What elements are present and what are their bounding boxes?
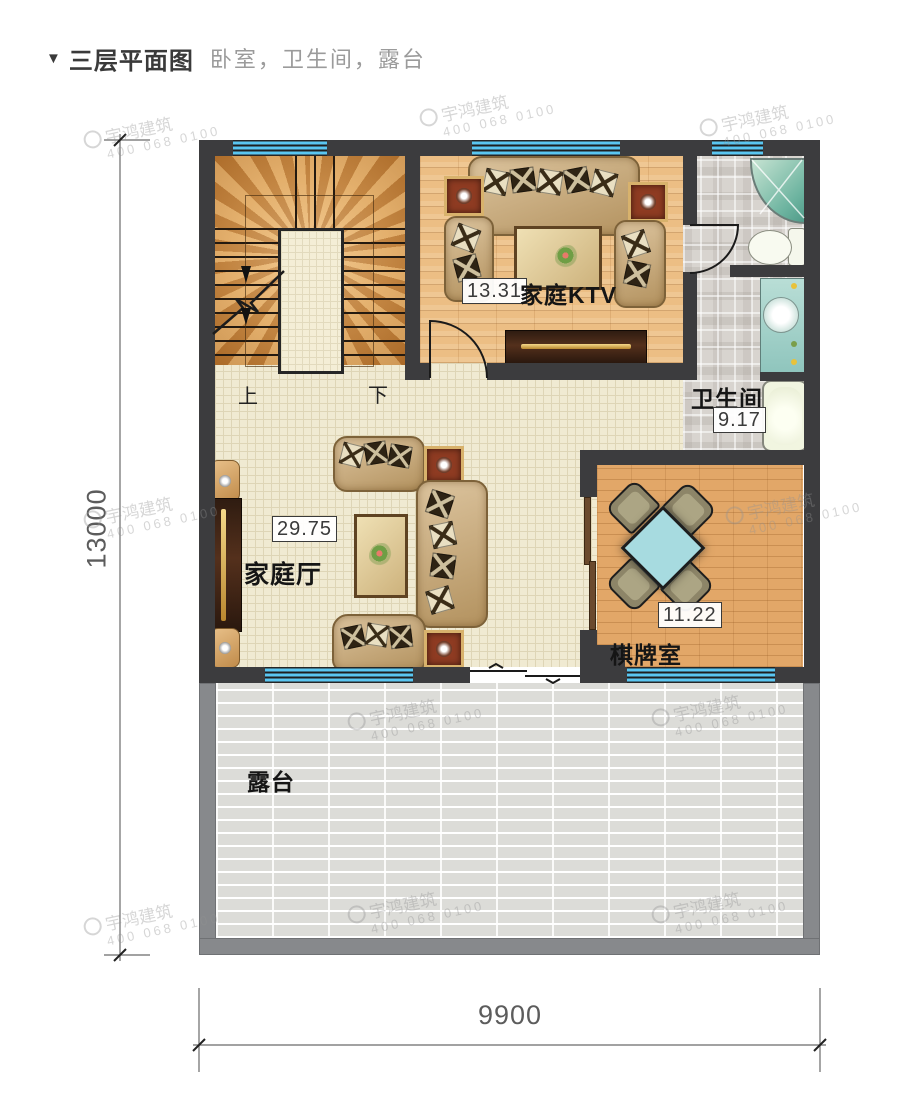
wall-ktv-bottom <box>420 363 430 380</box>
window-ktv <box>472 140 620 156</box>
toiletry <box>791 341 797 347</box>
terrace-floor <box>216 683 803 938</box>
dimension-left-value: 13000 <box>82 503 113 569</box>
wall-ktv-bottom <box>487 363 697 380</box>
sliding-door-panel <box>584 497 591 565</box>
area-badge-ktv: 13.31 <box>462 278 527 304</box>
wall-bath-stub <box>760 372 804 381</box>
bowl <box>436 457 452 473</box>
stair-up-label: 上 <box>238 380 258 409</box>
floor-plan-page: ▼ 三层平面图 卧室，卫生间，露台 <box>0 0 910 1116</box>
title-main: 三层平面图 <box>69 41 194 76</box>
window-stairwell <box>233 140 327 156</box>
pillow <box>509 166 536 193</box>
watermark-logo-icon <box>418 107 439 128</box>
ktv-side-table-left <box>444 176 484 216</box>
toilet-bowl <box>748 230 792 265</box>
pillow <box>364 622 389 647</box>
wall-exterior-right <box>804 140 820 683</box>
wall-chess-left <box>580 450 597 497</box>
terrace-wall-right <box>803 683 820 955</box>
wall-ktv-bath <box>683 155 697 225</box>
watermark: 宇鸿建筑400 068 0100 <box>418 82 558 143</box>
area-badge-hall: 29.75 <box>272 516 337 542</box>
wall-stairwell-right <box>405 155 420 380</box>
wall-chess-bottom <box>775 667 820 683</box>
tv-screen <box>521 344 631 349</box>
terrace-wall-left <box>199 683 216 955</box>
pillow <box>429 521 457 549</box>
bowl <box>640 194 656 210</box>
watermark-logo-icon <box>82 916 103 937</box>
stair-down-label: 下 <box>368 379 388 408</box>
title-subtitle: 卧室，卫生间，露台 <box>210 42 426 74</box>
knob <box>219 475 231 487</box>
bowl <box>436 641 452 657</box>
dimension-tick <box>193 1039 826 1051</box>
stair-void <box>278 228 344 374</box>
ktv-side-table-right <box>628 182 668 222</box>
window-bathroom <box>712 140 763 156</box>
sink <box>763 297 799 333</box>
room-label-terrace: 露台 <box>247 763 295 797</box>
wall-exterior-left <box>199 140 215 683</box>
ktv-tv-cabinet <box>505 330 647 364</box>
pillow <box>482 168 510 196</box>
hall-coffee-table <box>354 514 408 598</box>
pillow <box>387 443 412 468</box>
pillow <box>389 625 414 650</box>
pillow <box>563 166 591 194</box>
toiletry <box>791 283 797 289</box>
wall-bath-divider <box>730 265 804 277</box>
page-title: ▼ 三层平面图 卧室，卫生间，露台 <box>46 42 426 74</box>
knob <box>219 642 231 654</box>
plant <box>555 245 581 271</box>
bathtub <box>762 380 808 452</box>
triangle-marker-icon: ▼ <box>46 50 61 67</box>
sliding-door-panel <box>589 561 596 630</box>
area-badge-chess: 11.22 <box>658 602 722 628</box>
pillow <box>623 260 651 288</box>
terrace-wall-bottom <box>199 938 820 955</box>
room-label-chess: 棋牌室 <box>610 636 682 670</box>
dimension-bottom-value: 9900 <box>460 1000 560 1031</box>
dimension-tick <box>114 134 126 961</box>
tv-screen <box>221 509 226 621</box>
hall-side-table-top <box>424 446 464 484</box>
ktv-sofa-top <box>468 156 640 236</box>
plant <box>369 543 395 569</box>
wall-hall-bottom <box>413 667 470 683</box>
hall-side-table-bottom <box>424 630 464 668</box>
pillow <box>340 624 366 650</box>
area-badge-bath: 9.17 <box>713 407 766 433</box>
pillow <box>363 440 388 465</box>
watermark-logo-icon <box>698 117 719 138</box>
wall-hall-bottom <box>199 667 265 683</box>
pillow <box>429 552 456 579</box>
room-label-hall: 家庭厅 <box>244 555 322 591</box>
wall-ktv-bath <box>683 272 697 378</box>
toiletry <box>791 359 797 365</box>
room-label-ktv: 家庭KTV <box>520 276 617 310</box>
bowl <box>456 188 472 204</box>
watermark-logo-icon <box>82 129 103 150</box>
sink-vanity <box>760 278 806 374</box>
wall-chess-top <box>580 450 804 465</box>
window-hall <box>265 667 413 683</box>
pillow <box>536 168 563 195</box>
